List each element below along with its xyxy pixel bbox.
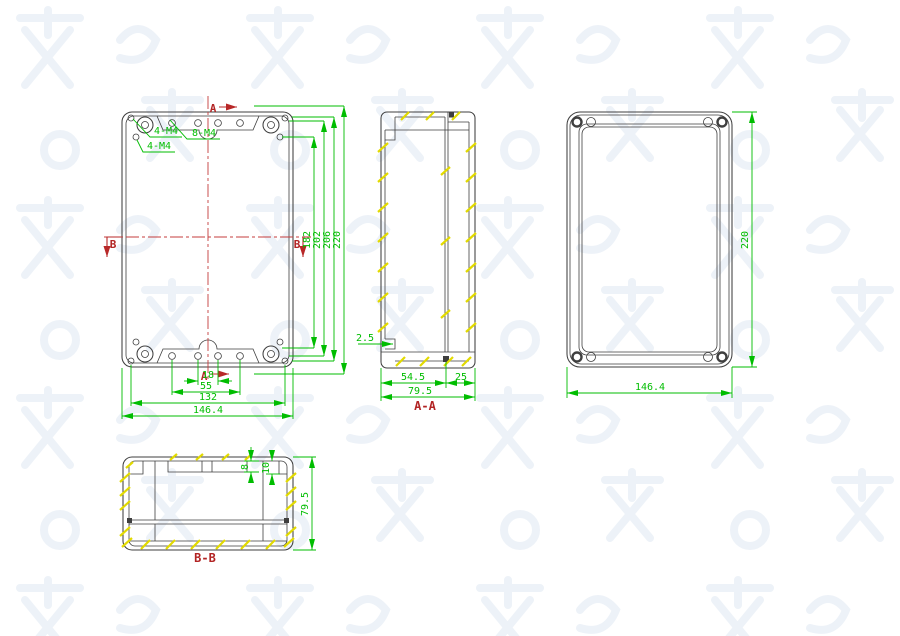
callout-4m4-top: 4-M4 (154, 126, 178, 137)
dim-79-5: 79.5 (408, 386, 432, 397)
dim-2-5: 2.5 (356, 333, 374, 344)
dim-132: 132 (199, 392, 217, 403)
section-aa-title: A-A (414, 399, 436, 413)
marker-b-left: B (110, 238, 117, 251)
marker-a-top: A (210, 102, 217, 115)
dim-18: 18 (202, 370, 214, 381)
marker-b-right: B (294, 238, 301, 251)
drawing-sheet: A A B B 4-M4 4-M4 8-M4 182 202 (0, 0, 900, 636)
dim-25: 25 (455, 372, 467, 383)
dim-146-4: 146.4 (193, 405, 223, 416)
dim-back-220: 220 (740, 231, 751, 249)
cad-drawing: A A B B 4-M4 4-M4 8-M4 182 202 (0, 0, 900, 636)
dim-55: 55 (200, 381, 212, 392)
dim-54-5: 54.5 (401, 372, 425, 383)
section-bb-title: B-B (194, 551, 216, 565)
dim-10: 10 (261, 462, 272, 474)
callout-8m4: 8-M4 (192, 128, 216, 139)
dim-back-146-4: 146.4 (635, 382, 665, 393)
callout-4m4-inner: 4-M4 (147, 141, 171, 152)
dim-bb-79-5: 79.5 (300, 492, 311, 516)
dim-8: 8 (240, 464, 251, 470)
dim-220: 220 (332, 231, 343, 249)
